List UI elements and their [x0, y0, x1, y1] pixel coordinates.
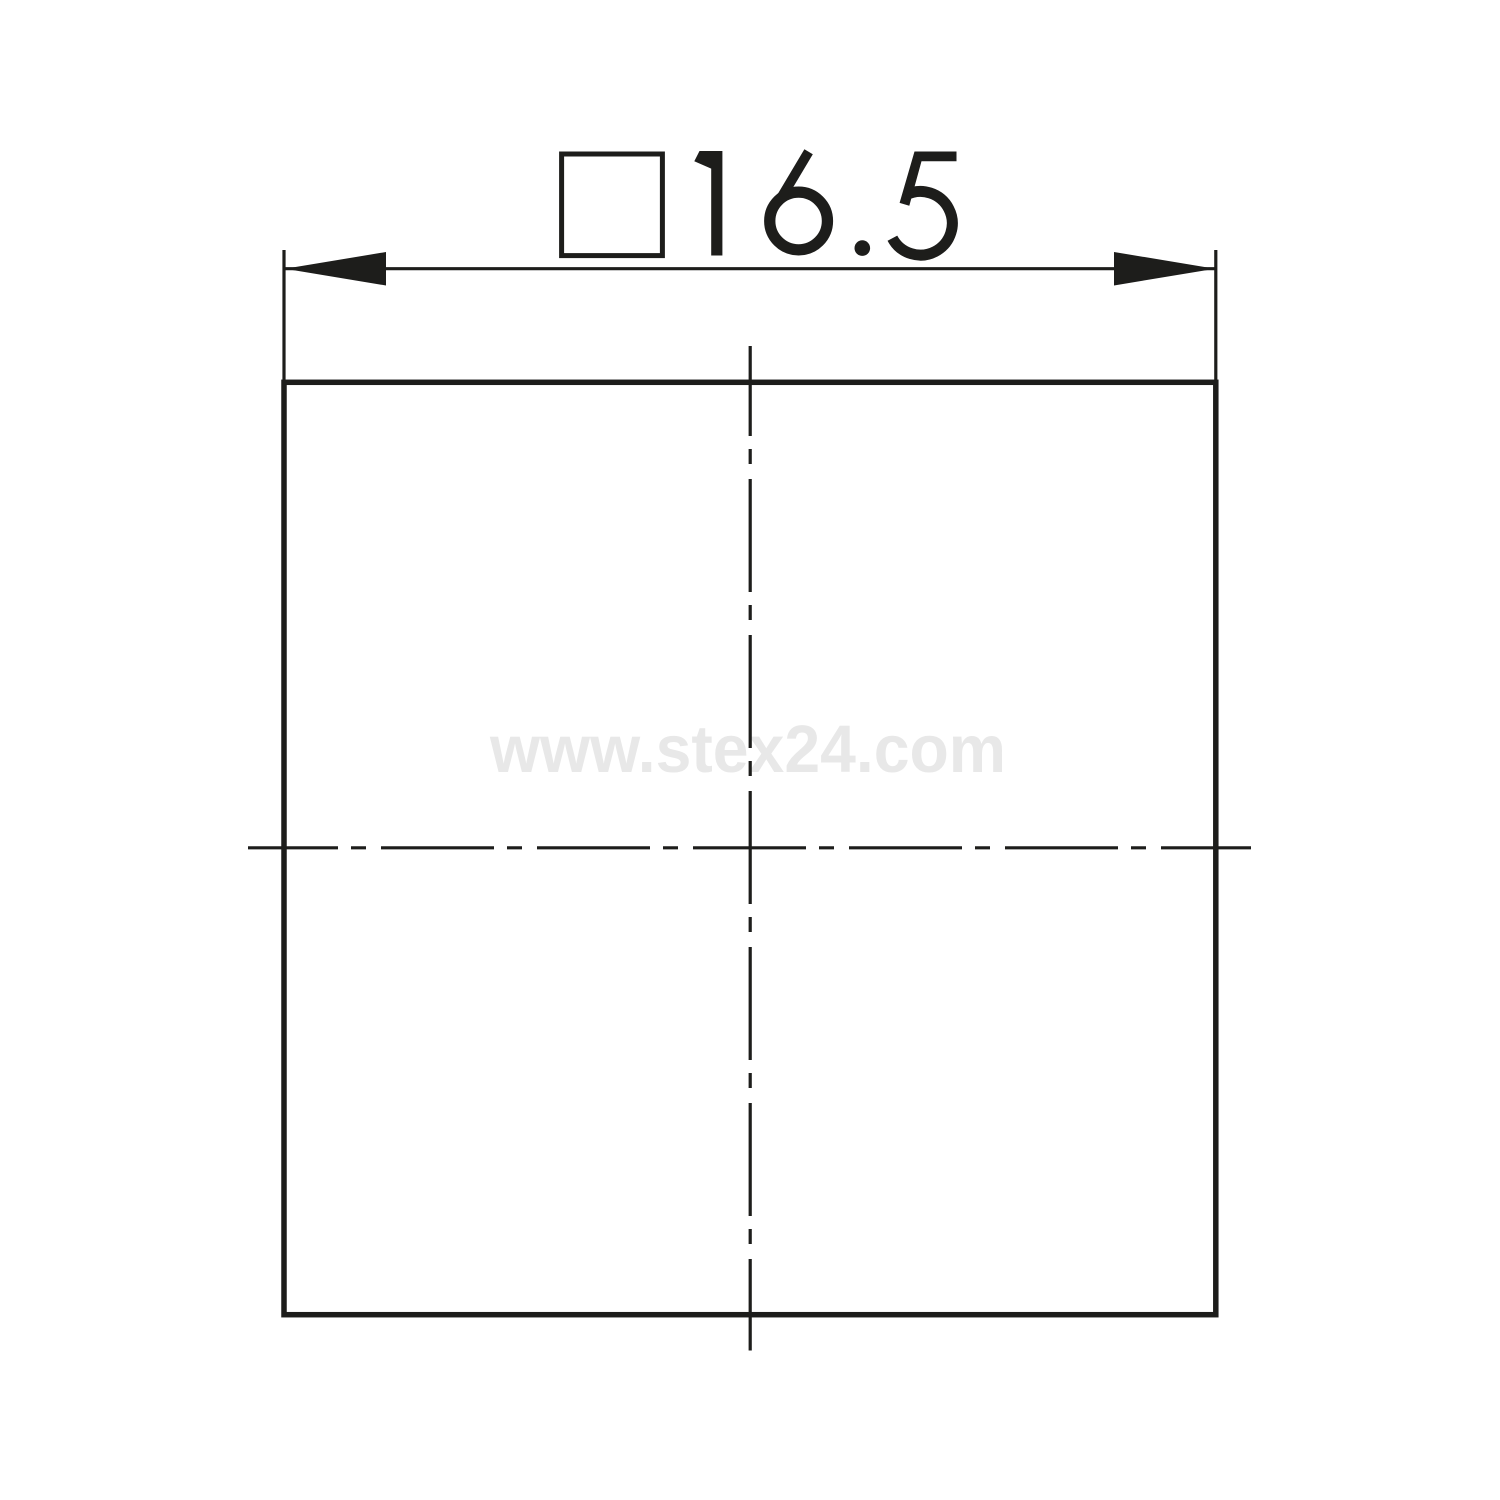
svg-text:www.stex24.com: www.stex24.com [489, 712, 1006, 787]
